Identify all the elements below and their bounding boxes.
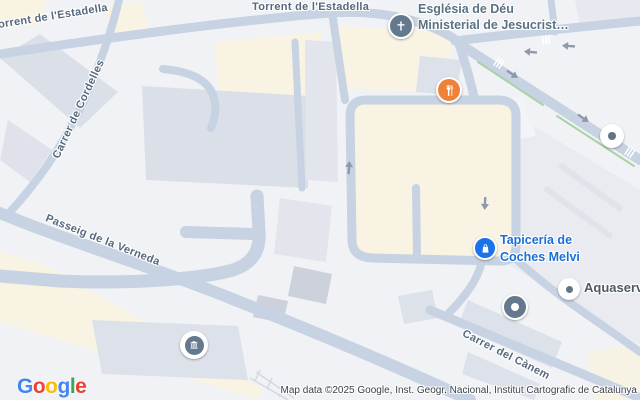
- area-dot: [511, 303, 519, 311]
- logo-letter: e: [75, 375, 86, 398]
- logo-letter: G: [17, 375, 33, 398]
- logo-letter: o: [45, 375, 57, 398]
- street-label-torrent-estadella-center: Torrent de l'Estadella: [252, 1, 369, 13]
- logo-letter: o: [33, 375, 45, 398]
- depot-building-glyph: [185, 336, 204, 355]
- church-cross-icon[interactable]: [388, 13, 414, 39]
- logo-letter: g: [58, 375, 70, 398]
- poi-label-aquaserv[interactable]: Aquaserv: [584, 280, 640, 295]
- place-dot: [566, 286, 573, 293]
- transit-depot-icon[interactable]: [180, 331, 208, 359]
- map-attribution: Map data ©2025 Google, Inst. Geogr. Naci…: [281, 385, 637, 396]
- area-dot-icon[interactable]: [502, 294, 528, 320]
- generic-place-dot-icon[interactable]: [600, 124, 624, 148]
- shopping-bag-icon[interactable]: [473, 236, 497, 260]
- poi-label-tapiceria[interactable]: Tapicería de Coches Melvi: [500, 232, 580, 265]
- place-dot: [608, 132, 616, 140]
- google-logo[interactable]: Google: [17, 375, 86, 399]
- restaurant-fork-knife-icon[interactable]: [436, 77, 462, 103]
- generic-place-dot-icon[interactable]: [558, 278, 580, 300]
- poi-label-esglesia[interactable]: Església de Déu Ministerial de Jesucrist…: [418, 1, 569, 33]
- map-canvas[interactable]: Torrent de l'Estadella Torrent de l'Esta…: [0, 0, 640, 400]
